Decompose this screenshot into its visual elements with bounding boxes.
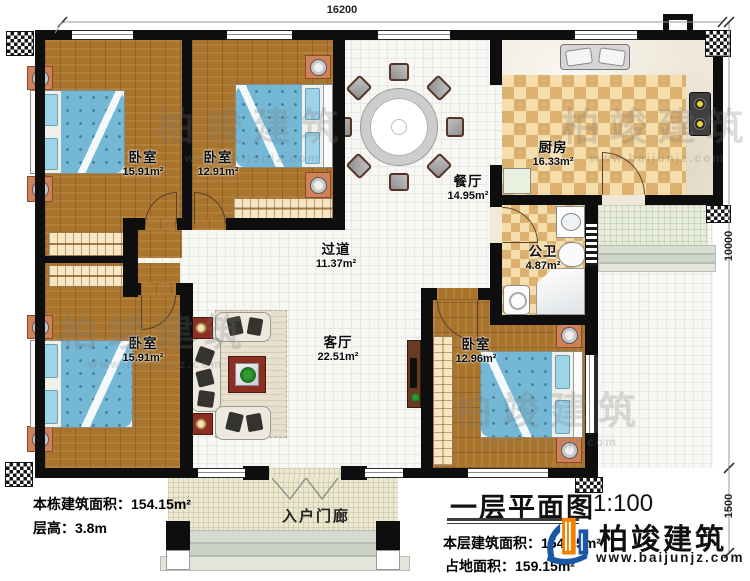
window (575, 30, 637, 40)
wall-pilaster (341, 466, 367, 480)
nightstand (305, 172, 331, 198)
room-label-dining: 餐厅 14.95m² (430, 174, 506, 202)
wall-exterior-left (35, 30, 45, 478)
sink-basin (565, 47, 593, 66)
wall-pilaster (243, 466, 269, 480)
room-area: 11.37m² (299, 258, 373, 271)
room-name: 卧室 (105, 336, 181, 352)
pillow (43, 390, 58, 424)
room-area: 22.51m² (300, 351, 376, 364)
terrace-step (598, 263, 716, 272)
wall-bed-bl-top (123, 283, 141, 295)
room-name: 卧室 (438, 337, 514, 353)
floor-height-note: 层高：3.8m (33, 518, 107, 538)
wall-bed-tl-tm (182, 40, 192, 230)
window (378, 30, 450, 40)
porch-column (166, 521, 190, 550)
room-name: 公卫 (505, 244, 581, 260)
wardrobe (48, 265, 126, 287)
room-name: 餐厅 (430, 174, 506, 190)
window (72, 30, 133, 40)
terrace-step (598, 254, 716, 263)
porch-label: 入户门廊 (251, 505, 381, 526)
pillow (555, 400, 570, 433)
coffee-table (228, 356, 266, 393)
washing-machine (503, 285, 530, 315)
room-label-bathroom: 公卫 4.87m² (505, 244, 581, 272)
pillow (305, 132, 320, 164)
room-label-living: 客厅 22.51m² (300, 335, 376, 363)
bed-headboard (323, 85, 332, 167)
room-area: 15.91m² (105, 352, 181, 365)
door-opening (602, 195, 645, 205)
nightstand (556, 437, 582, 463)
sofa-cushion (246, 413, 264, 432)
brand-logo-icon (537, 510, 595, 572)
room-area: 14.95m² (430, 190, 506, 203)
wall-bed-br-top (421, 288, 437, 300)
stove-burner (694, 118, 706, 130)
pillow (305, 88, 320, 120)
bathroom-vanity (556, 206, 585, 238)
wall-bed-tm-bottom (226, 218, 345, 230)
door-opening (437, 288, 478, 300)
sink-basin (598, 47, 626, 66)
window (468, 468, 548, 478)
room-name: 卧室 (173, 150, 263, 166)
room-name: 过道 (299, 242, 373, 258)
window (227, 30, 292, 40)
window (365, 468, 403, 478)
door-opening (490, 207, 502, 243)
wall-bed-tm-dining (333, 40, 345, 230)
door-opening (141, 283, 176, 295)
sofa-cushion (247, 317, 264, 336)
plan-scale: 1:100 (593, 490, 653, 518)
potted-plant (411, 393, 420, 402)
porch-step (172, 530, 398, 543)
room-name: 厨房 (513, 140, 593, 156)
floor-plan: 卧室 15.91m² 卧室 12.91m² 餐厅 14.95m² 厨房 16.3… (0, 0, 750, 581)
potted-plant (240, 367, 256, 383)
room-area: 16.33m² (513, 156, 593, 169)
wall-kitchen-bottom (645, 195, 723, 205)
sofa-cushion (197, 390, 215, 408)
table-lamp (195, 418, 207, 430)
pillow (43, 344, 58, 378)
wall-kitchen-bottom (490, 195, 602, 205)
room-name: 客厅 (300, 335, 376, 351)
dimension-top: 16200 (318, 4, 366, 16)
dimension-right: 10000 (723, 219, 735, 273)
wall-living-bed-br (421, 288, 433, 468)
kitchen-stove (689, 92, 711, 136)
window (585, 355, 598, 433)
corner-column-hatch (705, 30, 731, 57)
pillow (555, 355, 570, 388)
washbasin (561, 213, 581, 231)
wardrobe (48, 232, 124, 256)
room-label-kitchen: 厨房 16.33m² (513, 140, 593, 168)
porch-column-base (166, 550, 190, 570)
dining-chair (446, 117, 464, 137)
stove-burner (694, 98, 706, 110)
room-area: 12.91m² (173, 166, 263, 179)
room-area: 12.96m² (438, 353, 514, 366)
porch-column-base (376, 550, 400, 570)
porch-step (160, 556, 410, 571)
room-label-bedroom-br: 卧室 12.96m² (438, 337, 514, 365)
corner-column-hatch (6, 31, 34, 56)
terrace-step (598, 245, 716, 254)
table-lamp (195, 322, 207, 334)
sofa-section (215, 406, 271, 440)
dining-chair (389, 173, 409, 191)
bed-headboard (573, 352, 582, 437)
porch-step (172, 543, 398, 556)
wall-bed-tl-bottom (177, 218, 192, 230)
pillow (43, 138, 58, 170)
dining-chair (389, 63, 409, 81)
room-label-bedroom-bl: 卧室 15.91m² (105, 336, 181, 364)
tv-icon (410, 358, 417, 388)
wall-bathroom-bottom (490, 315, 585, 325)
room-area: 4.87m² (505, 260, 581, 273)
room-label-hallway: 过道 11.37m² (299, 242, 373, 270)
wardrobe (233, 198, 333, 219)
dining-table (361, 89, 437, 165)
brand-url: www.baijunjz.com (596, 550, 745, 565)
nightstand (305, 55, 331, 79)
kitchen-sink (560, 44, 630, 70)
wall-bathroom-left (490, 243, 502, 325)
window (198, 468, 245, 478)
tv-cabinet (407, 340, 421, 408)
bathroom-louver-window (585, 223, 598, 267)
wall-wardrobe-divider (45, 256, 125, 263)
kitchen-appliance (503, 168, 531, 194)
wall-bed-bl-living (180, 283, 193, 468)
nightstand (556, 322, 582, 348)
pillow (43, 94, 58, 126)
corner-column-hatch (5, 462, 33, 487)
room-label-bedroom-tm: 卧室 12.91m² (173, 150, 263, 178)
entry-door-opening (269, 468, 341, 478)
kitchen-terrace (598, 205, 708, 245)
wall-dining-kitchen (490, 40, 502, 85)
building-area-note: 本栋建筑面积：154.15m² (33, 494, 191, 514)
sofa-section (215, 312, 271, 342)
